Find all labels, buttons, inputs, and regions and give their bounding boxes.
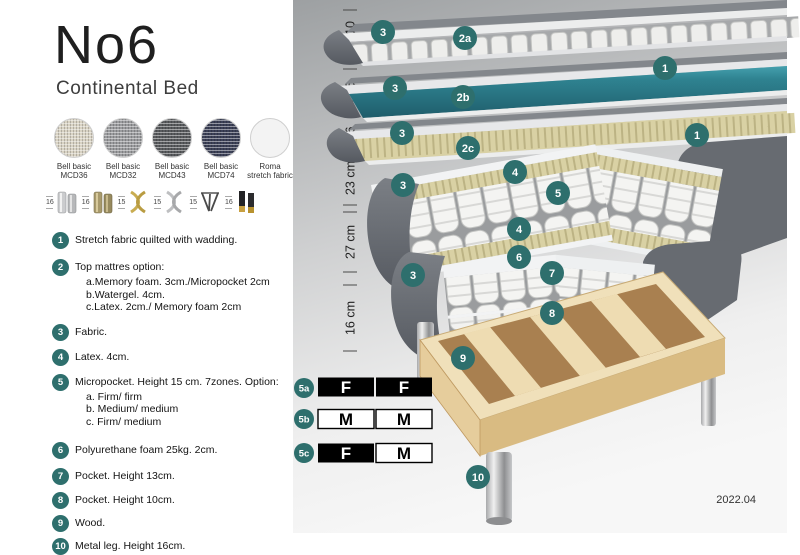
feature-text: Latex. 4cm. xyxy=(75,349,129,364)
feature-number-badge: 1 xyxy=(52,232,69,249)
feature-number-badge: 8 xyxy=(52,492,69,509)
svg-text:7: 7 xyxy=(549,268,555,280)
feature-text: Micropocket. Height 15 cm. 7zones. Optio… xyxy=(75,374,279,389)
svg-text:1: 1 xyxy=(662,63,668,75)
leg-option: 16 xyxy=(225,189,258,215)
callout: 5 xyxy=(546,181,570,205)
feature-number-badge: 3 xyxy=(52,324,69,341)
feature-number-badge: 10 xyxy=(52,538,69,555)
callout: 9 xyxy=(451,346,475,370)
callout: 6 xyxy=(507,245,531,269)
svg-text:3: 3 xyxy=(392,83,398,95)
svg-text:8: 8 xyxy=(549,308,555,320)
leg-cross-silver-icon xyxy=(162,189,186,215)
leg-option: 15 xyxy=(153,189,186,215)
svg-text:9: 9 xyxy=(460,353,466,365)
page: { "product": { "title": "No6", "subtitle… xyxy=(0,0,800,533)
feature-number-badge: 6 xyxy=(52,442,69,459)
svg-text:4: 4 xyxy=(516,224,523,236)
fabric-swatch: Bell basicMCD36 xyxy=(52,118,96,180)
leg-height: 16 xyxy=(82,194,90,211)
svg-text:2a: 2a xyxy=(459,33,472,45)
version-label: 2022.04 xyxy=(716,494,756,506)
feature-subitem: b.Watergel. 4cm. xyxy=(86,289,296,302)
svg-text:4: 4 xyxy=(512,167,519,179)
firmness-cell: F xyxy=(341,444,351,463)
fabric-code: MCD36 xyxy=(60,171,87,180)
svg-text:10: 10 xyxy=(472,472,484,484)
fabric-swatch-icon xyxy=(54,118,94,158)
svg-text:3: 3 xyxy=(400,180,406,192)
measurement-label: 23 cm xyxy=(343,161,357,195)
leg-height: 15 xyxy=(118,194,126,211)
fabric-name: Bell basic xyxy=(204,162,238,171)
leg-height: 16 xyxy=(225,194,233,211)
firmness-cell: F xyxy=(341,378,351,397)
feature-text: Wood. xyxy=(75,515,105,530)
feature-list: 1 Stretch fabric quilted with wadding. 2… xyxy=(52,232,296,555)
feature-number-badge: 7 xyxy=(52,468,69,485)
fabric-code: stretch fabric xyxy=(247,171,293,180)
fabric-code: MCD74 xyxy=(207,171,234,180)
leg-options: 16 16 15 15 xyxy=(46,189,258,215)
callout: 2a xyxy=(453,26,477,50)
callout: 3 xyxy=(390,121,414,145)
feature-subitem: a.Memory foam. 3cm./Micropocket 2cm xyxy=(86,276,296,289)
feature-item: 7 Pocket. Height 13cm. xyxy=(52,468,296,485)
feature-text: Stretch fabric quilted with wadding. xyxy=(75,232,237,247)
firmness-cell: M xyxy=(339,410,353,429)
leg-height: 15 xyxy=(189,194,197,211)
fabric-swatch: Bell basicMCD32 xyxy=(101,118,145,180)
fabric-swatch-icon xyxy=(103,118,143,158)
measurement-label: 16 cm xyxy=(343,301,357,335)
feature-text: Metal leg. Height 16cm. xyxy=(75,538,185,553)
feature-text: Pocket. Height 10cm. xyxy=(75,492,175,507)
feature-subitem: c. Firm/ medium xyxy=(86,416,296,429)
callout: 2b xyxy=(451,85,475,109)
fabric-name: Bell basic xyxy=(106,162,140,171)
feature-item: 3 Fabric. xyxy=(52,324,296,341)
svg-text:1: 1 xyxy=(694,130,700,142)
leg-option: 15 xyxy=(118,189,151,215)
feature-number-badge: 5 xyxy=(52,374,69,391)
svg-text:2c: 2c xyxy=(462,143,474,155)
svg-text:5: 5 xyxy=(555,188,561,200)
fabric-code: MCD32 xyxy=(109,171,136,180)
callout: 2c xyxy=(456,136,480,160)
feature-item: 6 Polyurethane foam 25kg. 2cm. xyxy=(52,442,296,459)
callout: 1 xyxy=(653,56,677,80)
callout: 3 xyxy=(401,263,425,287)
firmness-cell: M xyxy=(397,410,411,429)
leg-height: 16 xyxy=(46,194,54,211)
info-panel: No6 Continental Bed Bell basicMCD36 Bell… xyxy=(0,0,293,533)
callout: 3 xyxy=(391,173,415,197)
fabric-swatch: Romastretch fabric xyxy=(248,118,292,180)
callout: 10 xyxy=(466,465,490,489)
fabric-swatches: Bell basicMCD36 Bell basicMCD32 Bell bas… xyxy=(52,118,292,180)
callout: 4 xyxy=(507,217,531,241)
callout: 3 xyxy=(371,20,395,44)
feature-text: Fabric. xyxy=(75,324,107,339)
leg-hairpin-icon xyxy=(198,189,222,215)
svg-text:6: 6 xyxy=(516,252,522,264)
leg-option: 16 xyxy=(82,189,115,215)
svg-text:3: 3 xyxy=(380,27,386,39)
feature-item: 5 Micropocket. Height 15 cm. 7zones. Opt… xyxy=(52,374,296,391)
feature-text: Top mattres option: xyxy=(75,259,164,274)
feature-number-badge: 4 xyxy=(52,349,69,366)
callout: 4 xyxy=(503,160,527,184)
fabric-code: MCD43 xyxy=(158,171,185,180)
fabric-swatch-icon xyxy=(250,118,290,158)
feature-item: 4 Latex. 4cm. xyxy=(52,349,296,366)
page-title: No6 xyxy=(54,14,159,76)
callout: 8 xyxy=(540,301,564,325)
callout: 7 xyxy=(540,261,564,285)
firmness-id: 5b xyxy=(298,414,309,425)
feature-item: 8 Pocket. Height 10cm. xyxy=(52,492,296,509)
leg-cross-gold-icon xyxy=(126,189,150,215)
leg-option: 15 xyxy=(189,189,222,215)
metal-leg-front xyxy=(486,452,512,525)
firmness-cell: M xyxy=(397,444,411,463)
firmness-id: 5c xyxy=(299,448,310,459)
feature-text: Pocket. Height 13cm. xyxy=(75,468,175,483)
svg-text:3: 3 xyxy=(399,128,405,140)
leg-cylinder-brass-icon xyxy=(91,189,115,215)
feature-item: 9 Wood. xyxy=(52,515,296,532)
fabric-name: Bell basic xyxy=(57,162,91,171)
fabric-swatch-icon xyxy=(201,118,241,158)
feature-item: 10 Metal leg. Height 16cm. xyxy=(52,538,296,555)
feature-item: 1 Stretch fabric quilted with wadding. xyxy=(52,232,296,249)
feature-text: Polyurethane foam 25kg. 2cm. xyxy=(75,442,217,457)
leg-black-gold-icon xyxy=(234,189,258,215)
feature-item: 2 Top mattres option: xyxy=(52,259,296,276)
measurement-label: 27 cm xyxy=(343,225,357,259)
page-subtitle: Continental Bed xyxy=(56,78,199,100)
leg-height: 15 xyxy=(153,194,161,211)
firmness-cell: F xyxy=(399,378,409,397)
feature-subitem: b. Medium/ medium xyxy=(86,403,296,416)
leg-cylinder-chrome-icon xyxy=(55,189,79,215)
fabric-swatch-icon xyxy=(152,118,192,158)
feature-number-badge: 2 xyxy=(52,259,69,276)
fabric-swatch: Bell basicMCD43 xyxy=(150,118,194,180)
leg-option: 16 xyxy=(46,189,79,215)
callout: 3 xyxy=(383,76,407,100)
callout: 1 xyxy=(685,123,709,147)
firmness-id: 5a xyxy=(299,383,310,394)
feature-subitem: a. Firm/ firm xyxy=(86,391,296,404)
bed-exploded-diagram: 10 6 6 23 cm 27 cm 16 cm xyxy=(293,0,800,533)
svg-text:3: 3 xyxy=(410,270,416,282)
svg-text:2b: 2b xyxy=(457,92,470,104)
feature-subitem: c.Latex. 2cm./ Memory foam 2cm xyxy=(86,301,296,314)
feature-number-badge: 9 xyxy=(52,515,69,532)
fabric-name: Roma xyxy=(259,162,280,171)
fabric-name: Bell basic xyxy=(155,162,189,171)
fabric-swatch: Bell basicMCD74 xyxy=(199,118,243,180)
